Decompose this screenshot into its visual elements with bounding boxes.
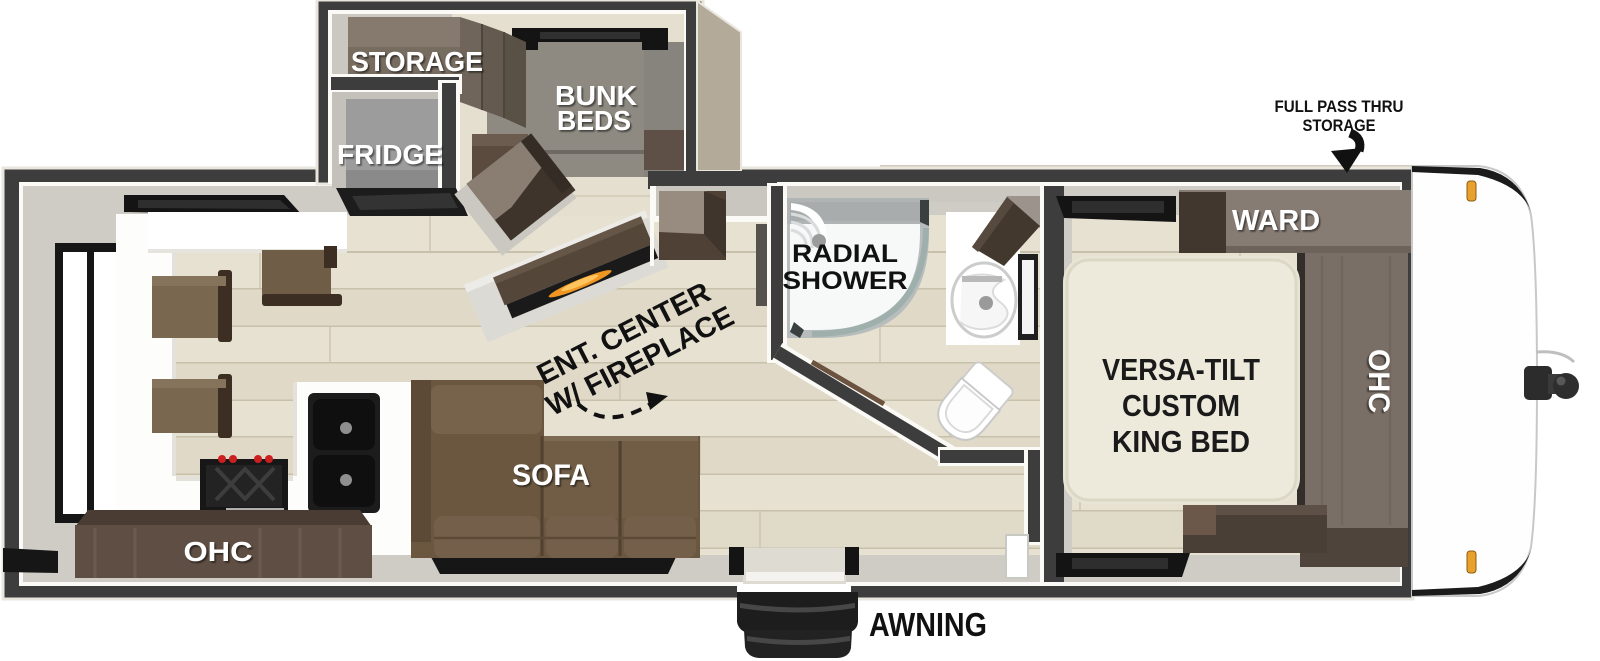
svg-text:STORAGE: STORAGE [1303, 116, 1376, 135]
svg-text:AWNING: AWNING [869, 606, 987, 643]
svg-text:WARD: WARD [1232, 205, 1320, 237]
svg-text:KING BED: KING BED [1112, 424, 1250, 459]
svg-text:SHOWER: SHOWER [783, 267, 908, 295]
svg-text:BEDS: BEDS [557, 105, 631, 136]
svg-text:SOFA: SOFA [512, 459, 590, 492]
svg-text:OHC: OHC [184, 536, 253, 567]
svg-text:CUSTOM: CUSTOM [1122, 388, 1240, 423]
svg-text:RADIAL: RADIAL [792, 240, 898, 268]
svg-text:OHC: OHC [1362, 349, 1395, 413]
svg-text:FULL PASS THRU: FULL PASS THRU [1275, 97, 1404, 116]
svg-text:FRIDGE: FRIDGE [337, 139, 443, 170]
svg-text:STORAGE: STORAGE [351, 46, 483, 77]
svg-text:VERSA-TILT: VERSA-TILT [1102, 352, 1260, 387]
